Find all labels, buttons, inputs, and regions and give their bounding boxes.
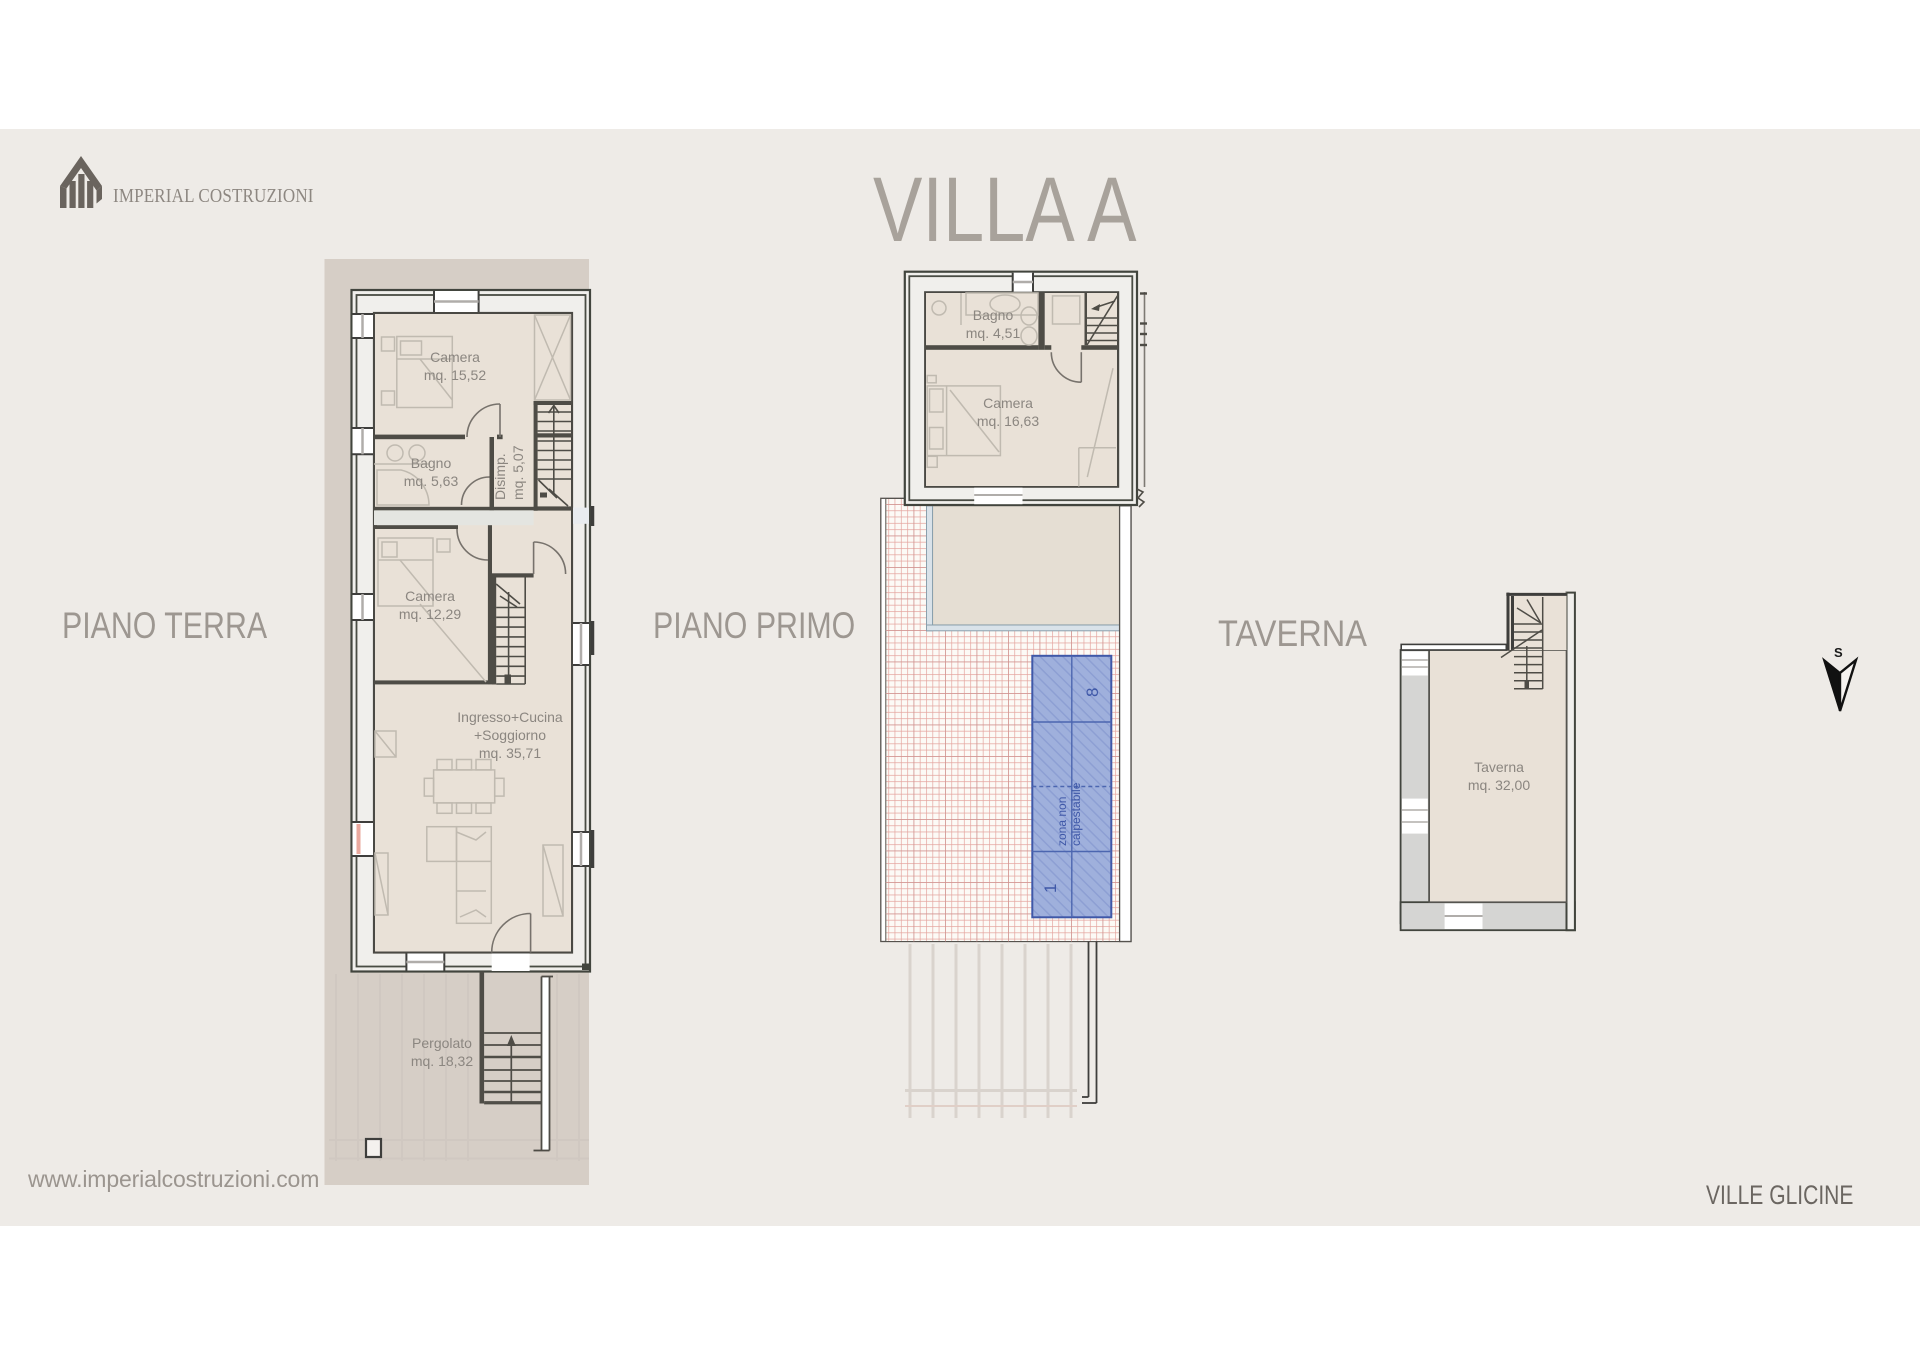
svg-text:calpestabile: calpestabile bbox=[1069, 782, 1083, 846]
svg-text:1: 1 bbox=[1041, 884, 1060, 893]
svg-text:mq. 5,63: mq. 5,63 bbox=[404, 473, 459, 489]
svg-text:Ingresso+Cucina: Ingresso+Cucina bbox=[457, 709, 563, 725]
svg-text:Taverna: Taverna bbox=[1474, 759, 1524, 775]
svg-text:mq. 35,71: mq. 35,71 bbox=[479, 745, 541, 761]
svg-text:PIANO TERRA: PIANO TERRA bbox=[62, 605, 267, 647]
svg-text:zona non: zona non bbox=[1055, 797, 1069, 846]
svg-text:8: 8 bbox=[1083, 688, 1102, 697]
svg-text:Disimp.: Disimp. bbox=[492, 453, 508, 500]
svg-text:Camera: Camera bbox=[430, 349, 480, 365]
svg-text:Bagno: Bagno bbox=[411, 455, 452, 471]
svg-text:mq. 15,52: mq. 15,52 bbox=[424, 367, 486, 383]
svg-text:Camera: Camera bbox=[405, 588, 455, 604]
svg-text:VILLA A: VILLA A bbox=[873, 157, 1137, 261]
svg-text:PIANO PRIMO: PIANO PRIMO bbox=[653, 605, 855, 647]
svg-text:mq. 32,00: mq. 32,00 bbox=[1468, 777, 1530, 793]
svg-text:Pergolato: Pergolato bbox=[412, 1035, 472, 1051]
svg-text:S: S bbox=[1834, 645, 1843, 660]
svg-text:mq. 12,29: mq. 12,29 bbox=[399, 606, 461, 622]
svg-text:+Soggiorno: +Soggiorno bbox=[474, 727, 546, 743]
svg-text:www.imperialcostruzioni.com: www.imperialcostruzioni.com bbox=[27, 1166, 319, 1192]
svg-text:Camera: Camera bbox=[983, 395, 1033, 411]
svg-text:VILLE GLICINE: VILLE GLICINE bbox=[1706, 1181, 1853, 1211]
svg-text:mq. 5,07: mq. 5,07 bbox=[510, 445, 526, 500]
svg-text:mq. 18,32: mq. 18,32 bbox=[411, 1053, 473, 1069]
svg-text:mq. 4,51: mq. 4,51 bbox=[966, 325, 1021, 341]
svg-text:Bagno: Bagno bbox=[973, 307, 1014, 323]
svg-text:mq. 16,63: mq. 16,63 bbox=[977, 413, 1039, 429]
svg-text:TAVERNA: TAVERNA bbox=[1218, 613, 1368, 654]
svg-text:IMPERIAL COSTRUZIONI: IMPERIAL COSTRUZIONI bbox=[113, 185, 314, 208]
